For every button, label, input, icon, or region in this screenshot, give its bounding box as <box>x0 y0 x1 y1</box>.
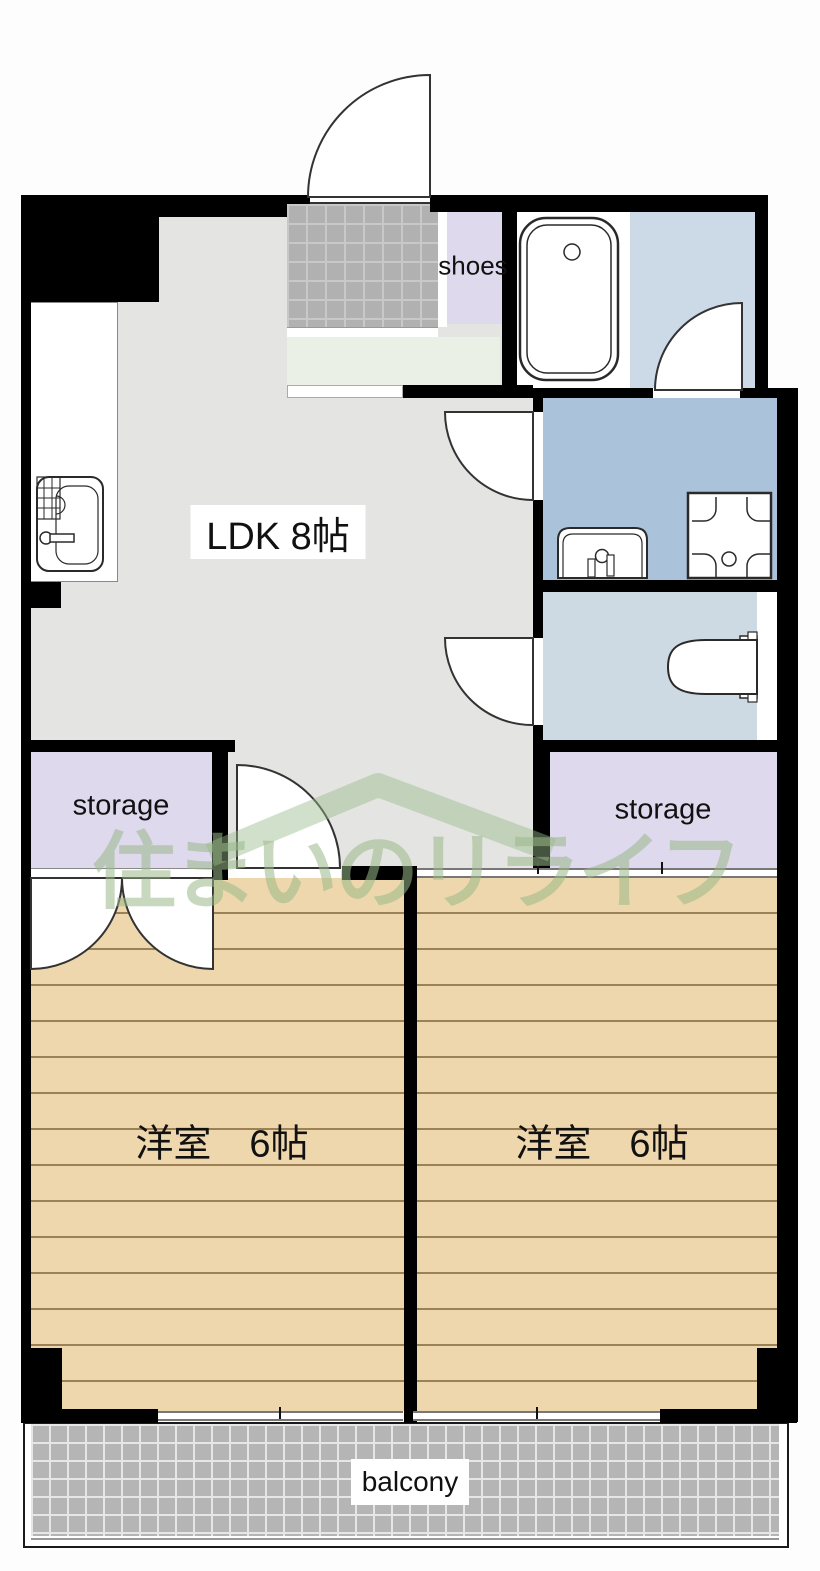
vanity-sink-icon <box>558 528 647 578</box>
storage-left-label: storage <box>73 790 170 823</box>
balcony-label: balcony <box>362 1466 459 1498</box>
storage-right-label: storage <box>615 794 712 827</box>
balcony-label-box: balcony <box>351 1459 469 1505</box>
entrance-door[interactable] <box>308 75 430 197</box>
washroom-door[interactable] <box>445 412 533 500</box>
closet-left-door-a[interactable] <box>31 878 122 969</box>
bedroom-left-label: 洋室 6帖 <box>135 1113 308 1168</box>
bathroom-door[interactable] <box>655 303 742 390</box>
ldk-label: LDK 8帖 <box>206 505 350 560</box>
bedroom-right-label: 洋室 6帖 <box>515 1113 688 1168</box>
bedroom-left-door[interactable] <box>237 765 340 868</box>
toilet-door[interactable] <box>445 638 533 725</box>
closet-left-door-b[interactable] <box>122 878 213 969</box>
toilet-icon <box>668 632 757 702</box>
bathtub-icon <box>520 218 618 380</box>
kitchen-sink-icon <box>37 477 103 571</box>
fixtures-layer <box>0 0 820 1571</box>
ldk-label-box: LDK 8帖 <box>191 505 366 559</box>
washing-machine-pan-icon <box>688 493 771 578</box>
floor-plan: shoes LDK 8帖 storage storage 洋室 6帖 洋室 6帖… <box>0 0 820 1571</box>
shoes-label: shoes <box>438 251 507 282</box>
